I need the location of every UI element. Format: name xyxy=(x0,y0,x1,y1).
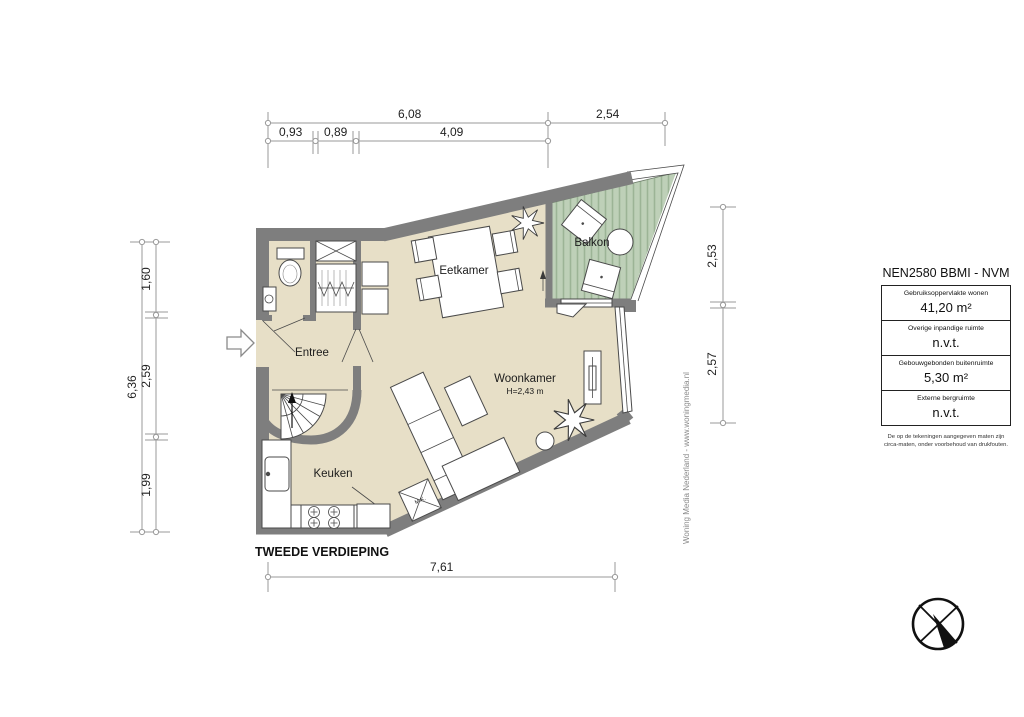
dim-left-sub-2: 1,99 xyxy=(139,473,153,497)
dim-right-sub-1: 2,57 xyxy=(705,352,719,376)
dimension-left: 6,36 1,60 2,59 1,99 xyxy=(125,239,170,534)
dimension-right: 2,53 2,57 xyxy=(705,204,736,425)
dining-chair xyxy=(411,237,436,262)
row-value: n.v.t. xyxy=(884,405,1008,420)
watermark-text: Woning Media Nederland - www.woningmedia… xyxy=(682,372,691,544)
room-label-balkon: Balkon xyxy=(574,237,609,249)
dim-left-sub-0: 1,60 xyxy=(139,267,153,291)
dim-top-sub-1: 0,89 xyxy=(324,125,348,139)
room-label-entree: Entree xyxy=(295,347,329,359)
row-value: n.v.t. xyxy=(884,335,1008,350)
row-label: Gebruiksoppervlakte wonen xyxy=(884,290,1008,297)
dim-top-sub-2: 4,09 xyxy=(440,125,464,139)
dim-right-sub-0: 2,53 xyxy=(705,244,719,268)
room-label-woonkamer-height: H=2,43 m xyxy=(506,386,543,396)
row-value: 5,30 m² xyxy=(884,370,1008,385)
tv-cabinet xyxy=(584,351,601,404)
stove xyxy=(301,504,390,529)
floor-title: TWEEDE VERDIEPING xyxy=(255,545,389,559)
dim-top-left: 6,08 xyxy=(398,107,422,121)
balcony-table xyxy=(607,229,633,255)
dining-chair xyxy=(492,230,517,255)
row-value: 41,20 m² xyxy=(884,300,1008,315)
toilet-sink xyxy=(263,287,276,311)
entrance-arrow-icon xyxy=(227,330,254,356)
table-row: Externe bergruimte n.v.t. xyxy=(882,391,1010,425)
row-label: Overige inpandige ruimte xyxy=(884,325,1008,332)
dim-top-right: 2,54 xyxy=(596,107,620,121)
dimension-bottom: 7,61 xyxy=(265,560,617,592)
dim-bottom-total: 7,61 xyxy=(430,560,454,574)
room-label-eetkamer: Eetkamer xyxy=(439,265,488,277)
floor-plan-drawing: M.K. xyxy=(0,0,1024,717)
row-label: Externe bergruimte xyxy=(884,395,1008,402)
nen2580-panel: NEN2580 BBMI - NVM Gebruiksoppervlakte w… xyxy=(881,266,1011,450)
room-label-keuken: Keuken xyxy=(313,468,352,480)
dim-left-sub-1: 2,59 xyxy=(139,364,153,388)
area-table: Gebruiksoppervlakte wonen 41,20 m² Overi… xyxy=(881,285,1011,426)
room-label-woonkamer: Woonkamer xyxy=(494,373,556,385)
side-table xyxy=(536,432,554,450)
dining-chair xyxy=(416,275,441,300)
table-row: Gebruiksoppervlakte wonen 41,20 m² xyxy=(882,286,1010,321)
table-row: Overige inpandige ruimte n.v.t. xyxy=(882,321,1010,356)
north-compass-icon xyxy=(913,599,963,649)
shaft-cupboard xyxy=(316,241,356,261)
wardrobe xyxy=(316,264,356,312)
panel-disclaimer: De op de tekeningen aangegeven maten zij… xyxy=(881,433,1011,450)
panel-title: NEN2580 BBMI - NVM xyxy=(881,266,1011,280)
dimension-top: 6,08 2,54 0,93 0,89 4,09 xyxy=(265,107,667,168)
floorplan-page: M.K. xyxy=(0,0,1024,717)
table-row: Gebouwgebonden buitenruimte 5,30 m² xyxy=(882,356,1010,391)
dining-chair xyxy=(497,268,522,293)
dim-top-sub-0: 0,93 xyxy=(279,125,303,139)
row-label: Gebouwgebonden buitenruimte xyxy=(884,360,1008,367)
dim-left-total: 6,36 xyxy=(125,375,139,399)
